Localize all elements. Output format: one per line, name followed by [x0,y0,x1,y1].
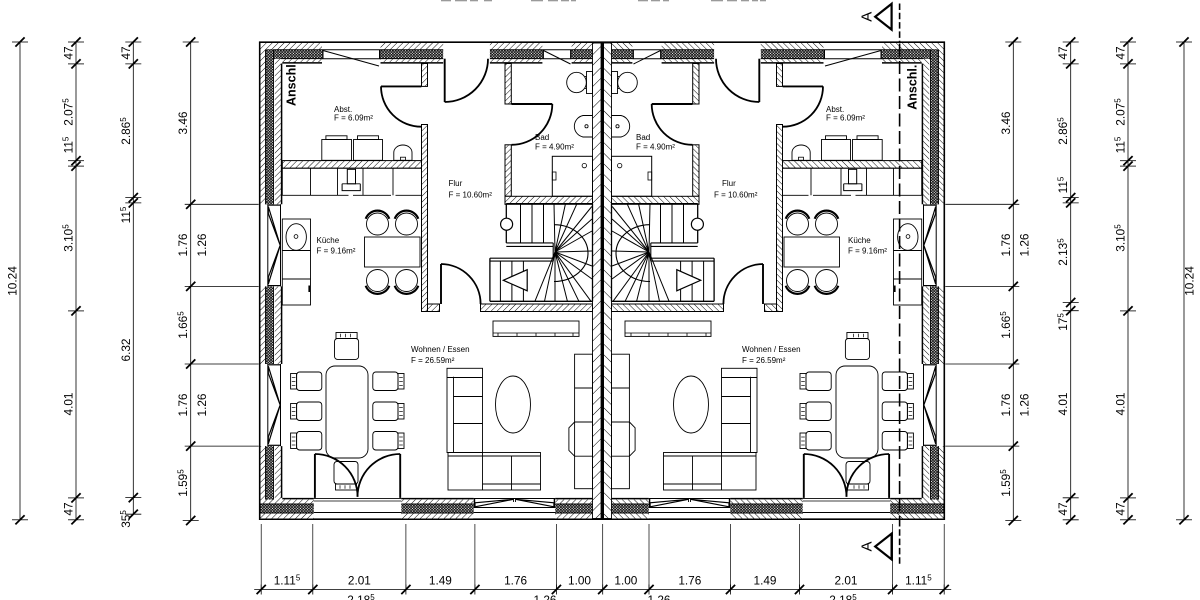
svg-text:47: 47 [1114,502,1128,515]
svg-text:Bad: Bad [535,133,549,142]
svg-text:1.00: 1.00 [568,574,591,588]
svg-text:Wohnen / Essen: Wohnen / Essen [411,345,470,354]
svg-text:F = 26.59m²: F = 26.59m² [742,356,786,365]
svg-text:1.26: 1.26 [195,233,209,256]
svg-text:2.01: 2.01 [348,574,371,588]
svg-text:Anschl.: Anschl. [285,61,299,106]
svg-text:1.26: 1.26 [534,593,557,600]
svg-text:1.76: 1.76 [999,393,1013,416]
svg-text:1.76: 1.76 [504,574,527,588]
svg-text:6.32: 6.32 [119,339,133,362]
svg-text:1.76: 1.76 [678,574,701,588]
svg-text:10.24: 10.24 [6,266,20,296]
svg-text:F = 10.60m²: F = 10.60m² [714,191,758,200]
svg-text:F = 26.59m²: F = 26.59m² [411,356,455,365]
svg-text:4.01: 4.01 [1056,393,1070,416]
svg-text:Anschl.: Anschl. [906,65,920,110]
svg-text:Flur: Flur [449,179,463,188]
svg-text:47: 47 [1114,46,1128,59]
svg-text:F = 6.09m²: F = 6.09m² [826,114,865,123]
svg-text:1.26: 1.26 [195,393,209,416]
svg-text:Wohnen / Essen: Wohnen / Essen [742,345,801,354]
svg-text:F = 4.90m²: F = 4.90m² [636,143,675,152]
svg-text:1.76: 1.76 [999,233,1013,256]
svg-text:47: 47 [62,502,76,515]
svg-text:47: 47 [62,46,76,59]
svg-text:1.76: 1.76 [176,393,190,416]
svg-text:2.185: 2.185 [829,593,857,600]
svg-text:1.49: 1.49 [754,574,777,588]
svg-text:3.46: 3.46 [176,111,190,134]
svg-text:4.01: 4.01 [1114,393,1128,416]
svg-text:F = 9.16m²: F = 9.16m² [317,247,356,256]
svg-text:1.00: 1.00 [614,574,637,588]
svg-text:A: A [859,541,876,551]
svg-text:47: 47 [1056,502,1070,515]
svg-text:1.76: 1.76 [176,233,190,256]
svg-text:F = 6.09m²: F = 6.09m² [334,114,373,123]
svg-text:Bad: Bad [636,133,650,142]
svg-text:Flur: Flur [722,179,736,188]
svg-text:1.49: 1.49 [429,574,452,588]
svg-text:Küche: Küche [848,236,871,245]
svg-text:1.26: 1.26 [1018,233,1032,256]
svg-text:3.46: 3.46 [999,111,1013,134]
svg-text:A: A [859,12,876,22]
svg-text:4.01: 4.01 [62,393,76,416]
svg-text:2.01: 2.01 [835,574,858,588]
svg-text:47: 47 [1056,46,1070,59]
svg-text:2.185: 2.185 [347,593,375,600]
svg-text:F = 9.16m²: F = 9.16m² [848,247,887,256]
svg-text:47: 47 [119,46,133,59]
svg-text:10.24: 10.24 [1183,266,1197,296]
svg-text:Küche: Küche [317,236,340,245]
svg-text:F = 4.90m²: F = 4.90m² [535,143,574,152]
svg-text:1.26: 1.26 [1018,393,1032,416]
svg-text:F = 10.60m²: F = 10.60m² [449,191,493,200]
svg-text:1.26: 1.26 [648,593,671,600]
